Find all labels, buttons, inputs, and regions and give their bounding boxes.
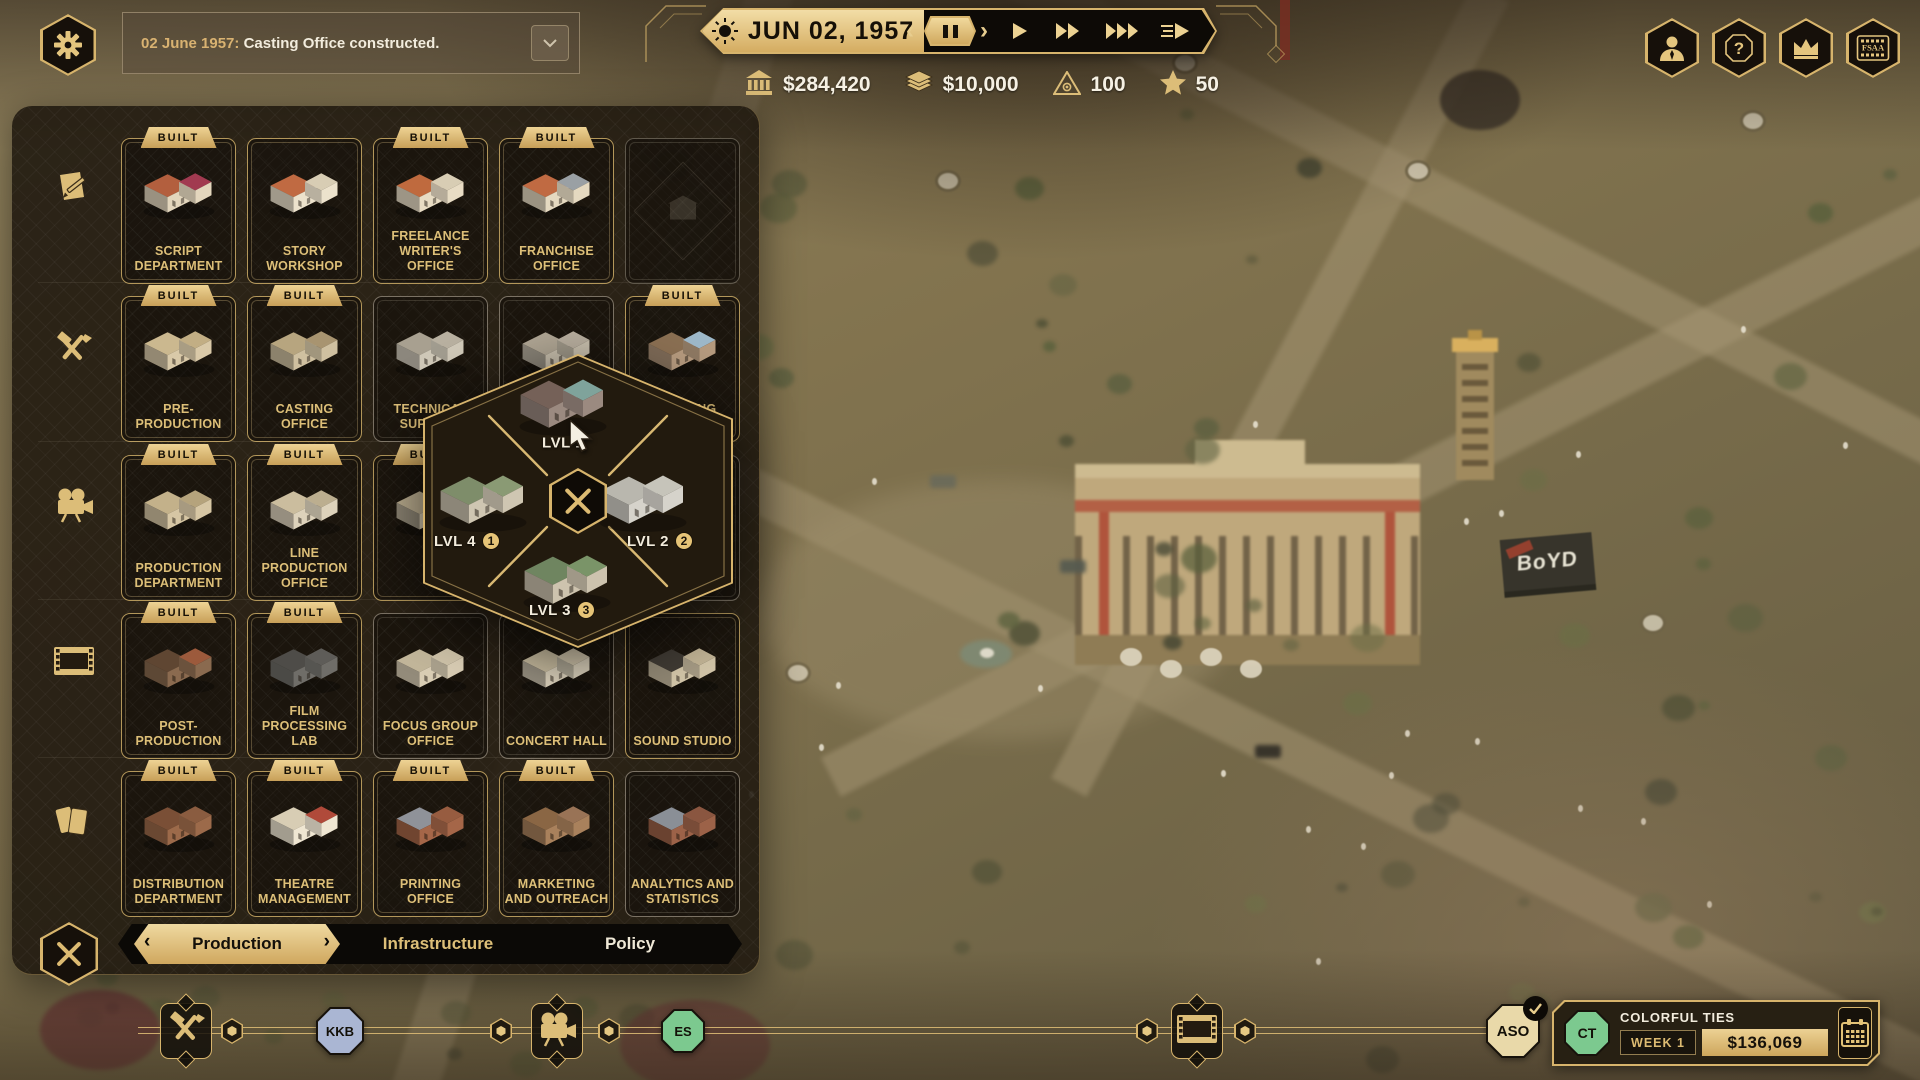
level-label: LVL 2 bbox=[627, 533, 669, 550]
building-card-story-workshop[interactable]: STORY WORKSHOP bbox=[247, 138, 362, 284]
building-card-printing-office[interactable]: PRINTING OFFICEBUILT bbox=[373, 771, 488, 917]
cash-stack-icon bbox=[905, 71, 933, 100]
resource-value: $10,000 bbox=[943, 73, 1019, 97]
phase-film-strip-button[interactable] bbox=[1171, 1003, 1223, 1059]
upgrade-lvl-1-building[interactable] bbox=[504, 360, 622, 445]
building-card-production-department[interactable]: PRODUCTION DEPARTMENTBUILT bbox=[121, 455, 236, 601]
row-divider bbox=[38, 757, 737, 758]
resource-star: 50 bbox=[1160, 70, 1219, 100]
building-label: CASTING OFFICE bbox=[251, 402, 358, 432]
fast-forward-icon bbox=[1056, 23, 1080, 39]
level-label: LVL 4 bbox=[434, 533, 476, 550]
tab-arrow-left: ‹ bbox=[144, 931, 150, 953]
level-count-badge: 2 bbox=[675, 532, 693, 550]
billboard-text: BoYD bbox=[1517, 547, 1578, 576]
building-label: PRODUCTION DEPARTMENT bbox=[125, 561, 232, 591]
built-badge: BUILT bbox=[393, 760, 469, 781]
resource-value: 100 bbox=[1091, 73, 1126, 97]
building-label: DISTRIBUTION DEPARTMENT bbox=[125, 877, 232, 907]
popup-close-button[interactable] bbox=[549, 468, 607, 534]
resource-value: $284,420 bbox=[783, 73, 871, 97]
building-image bbox=[131, 315, 227, 385]
notification-expand-button[interactable] bbox=[531, 25, 569, 61]
building-image bbox=[131, 632, 227, 702]
building-image bbox=[383, 790, 479, 860]
building-image bbox=[131, 790, 227, 860]
resource-bank: $284,420 bbox=[745, 70, 871, 101]
resource-cash-stack: $10,000 bbox=[905, 71, 1019, 100]
resource-value: 50 bbox=[1196, 73, 1219, 97]
sun-icon bbox=[712, 18, 738, 44]
category-movie-camera-icon[interactable] bbox=[52, 487, 98, 533]
category-film-strip-icon[interactable] bbox=[52, 645, 98, 691]
project-name: COLORFUL TIES bbox=[1620, 1010, 1828, 1025]
building-image bbox=[131, 157, 227, 227]
badge-label: ES bbox=[663, 1011, 703, 1051]
building-label: SOUND STUDIO bbox=[629, 734, 736, 749]
upgrade-lvl-4-option[interactable]: LVL 4 1 bbox=[434, 532, 500, 550]
building-card-distribution-department[interactable]: DISTRIBUTION DEPARTMENTBUILT bbox=[121, 771, 236, 917]
building-image bbox=[383, 157, 479, 227]
building-image bbox=[131, 474, 227, 544]
building-label: FRANCHISE OFFICE bbox=[503, 244, 610, 274]
built-badge: BUILT bbox=[267, 444, 343, 465]
building-image bbox=[509, 157, 605, 227]
phase-hammer-brush-button[interactable] bbox=[160, 1003, 212, 1059]
build-menu-tabs: ‹ Production › Infrastructure Policy bbox=[118, 924, 742, 964]
project-amount: $136,069 bbox=[1702, 1029, 1828, 1056]
building-card-marketing-and-outreach[interactable]: MARKETING AND OUTREACHBUILT bbox=[499, 771, 614, 917]
fast-forward-button[interactable] bbox=[1046, 8, 1090, 54]
calendar-icon bbox=[1840, 1018, 1870, 1048]
upgrade-level-popup: LVL 1 LVL 2 2 LVL 3 3 bbox=[423, 354, 733, 648]
built-badge: BUILT bbox=[267, 285, 343, 306]
locked-building-icon bbox=[666, 194, 700, 229]
tab-arrow-right: › bbox=[324, 931, 330, 953]
check-icon bbox=[1523, 996, 1548, 1021]
game-screen: BoYD 02 June 1957: Casting Office constr… bbox=[0, 0, 1920, 1080]
billboard: BoYD bbox=[1500, 532, 1597, 598]
tab-label: Policy bbox=[605, 934, 655, 954]
building-label: SCRIPT DEPARTMENT bbox=[125, 244, 232, 274]
building-label: ANALYTICS AND STATISTICS bbox=[629, 877, 736, 907]
upgrade-lvl-4-building[interactable] bbox=[424, 456, 542, 541]
built-badge: BUILT bbox=[519, 127, 595, 148]
building-card-analytics-and-statistics[interactable]: ANALYTICS AND STATISTICS bbox=[625, 771, 740, 917]
building-card-empty-slot bbox=[625, 138, 740, 284]
level-label: LVL 3 bbox=[529, 602, 571, 619]
star-icon bbox=[1160, 70, 1186, 100]
building-label: CONCERT HALL bbox=[503, 734, 610, 749]
current-project-panel[interactable]: CT COLORFUL TIES WEEK 1 $136,069 bbox=[1552, 1000, 1880, 1066]
skip-icon bbox=[1161, 22, 1189, 40]
row-divider bbox=[38, 282, 737, 283]
milestone-badge-es[interactable]: ES bbox=[661, 1009, 705, 1053]
level-count-badge: 1 bbox=[482, 532, 500, 550]
building-image bbox=[257, 790, 353, 860]
notification-message: Casting Office constructed. bbox=[244, 35, 440, 52]
current-date: JUN 02, 1957 bbox=[748, 17, 914, 46]
tab-label: Infrastructure bbox=[383, 934, 494, 954]
upgrade-lvl-3-option[interactable]: LVL 3 3 bbox=[529, 601, 595, 619]
svg-text:?: ? bbox=[1734, 39, 1744, 58]
svg-text:FSAA: FSAA bbox=[1862, 43, 1885, 53]
category-script-pencil-icon[interactable] bbox=[52, 169, 98, 215]
building-image bbox=[257, 157, 353, 227]
notification-date: 02 June 1957: bbox=[141, 35, 239, 52]
milestone-badge-kkb[interactable]: KKB bbox=[316, 1007, 364, 1055]
building-card-film-processing-lab[interactable]: FILM PROCESSING LABBUILT bbox=[247, 613, 362, 759]
building-image bbox=[635, 790, 731, 860]
building-label: FOCUS GROUP OFFICE bbox=[377, 719, 484, 749]
resource-eye-pyramid: 100 bbox=[1053, 71, 1126, 100]
built-badge: BUILT bbox=[267, 760, 343, 781]
pause-frame-left: ‹ bbox=[906, 8, 914, 54]
building-card-casting-office[interactable]: CASTING OFFICEBUILT bbox=[247, 296, 362, 442]
building-label: PRINTING OFFICE bbox=[377, 877, 484, 907]
milestone-badge-aso[interactable]: ASO bbox=[1486, 1004, 1540, 1058]
building-card-freelance-writer-s-office[interactable]: FREELANCE WRITER'S OFFICEBUILT bbox=[373, 138, 488, 284]
built-badge: BUILT bbox=[393, 127, 469, 148]
resources-bar: $284,420 $10,000 100 50 bbox=[745, 68, 1219, 102]
level-count-badge: 3 bbox=[577, 601, 595, 619]
date-banner: JUN 02, 1957 ‹ › bbox=[700, 8, 1217, 54]
building-image bbox=[509, 790, 605, 860]
play-icon bbox=[1013, 23, 1027, 39]
badge-label: KKB bbox=[318, 1009, 362, 1053]
building-label: STORY WORKSHOP bbox=[251, 244, 358, 274]
hammer-brush-icon bbox=[165, 1008, 207, 1055]
skip-button[interactable] bbox=[1152, 8, 1198, 54]
eye-pyramid-icon bbox=[1053, 71, 1081, 100]
mouse-cursor bbox=[570, 420, 596, 452]
building-label: LINE PRODUCTION OFFICE bbox=[251, 546, 358, 591]
building-label: MARKETING AND OUTREACH bbox=[503, 877, 610, 907]
building-label: POST-PRODUCTION bbox=[125, 719, 232, 749]
building-card-line-production-office[interactable]: LINE PRODUCTION OFFICEBUILT bbox=[247, 455, 362, 601]
building-image bbox=[257, 632, 353, 702]
building-card-script-department[interactable]: SCRIPT DEPARTMENTBUILT bbox=[121, 138, 236, 284]
tab-infrastructure[interactable]: Infrastructure bbox=[358, 924, 518, 964]
project-initials-badge: CT bbox=[1564, 1010, 1610, 1056]
built-badge: BUILT bbox=[141, 285, 217, 306]
pause-button[interactable] bbox=[924, 16, 976, 46]
play-button[interactable] bbox=[1000, 8, 1040, 54]
building-card-post-production[interactable]: POST-PRODUCTIONBUILT bbox=[121, 613, 236, 759]
project-week: WEEK 1 bbox=[1620, 1030, 1696, 1055]
category-hammer-brush-icon[interactable] bbox=[52, 328, 98, 374]
notification-bar[interactable]: 02 June 1957: Casting Office constructed… bbox=[122, 12, 580, 74]
building-image bbox=[257, 315, 353, 385]
built-badge: BUILT bbox=[267, 602, 343, 623]
bank-icon bbox=[745, 70, 773, 101]
building-card-theatre-management[interactable]: THEATRE MANAGEMENTBUILT bbox=[247, 771, 362, 917]
fastest-forward-icon bbox=[1106, 23, 1138, 39]
building-label: FREELANCE WRITER'S OFFICE bbox=[377, 229, 484, 274]
building-card-franchise-office[interactable]: FRANCHISE OFFICEBUILT bbox=[499, 138, 614, 284]
tab-label: Production bbox=[192, 934, 282, 954]
pause-frame-right: › bbox=[980, 8, 988, 54]
chevron-down-icon bbox=[543, 39, 557, 48]
fastest-forward-button[interactable] bbox=[1098, 8, 1146, 54]
calendar-button[interactable] bbox=[1838, 1007, 1872, 1059]
tab-production[interactable]: ‹ Production › bbox=[134, 924, 340, 964]
built-badge: BUILT bbox=[645, 285, 721, 306]
built-badge: BUILT bbox=[141, 602, 217, 623]
building-label: THEATRE MANAGEMENT bbox=[251, 877, 358, 907]
built-badge: BUILT bbox=[141, 444, 217, 465]
film-strip-icon bbox=[1175, 1013, 1219, 1050]
tab-policy[interactable]: Policy bbox=[550, 924, 710, 964]
category-tickets-icon[interactable] bbox=[52, 803, 98, 849]
building-card-pre-production[interactable]: PRE-PRODUCTIONBUILT bbox=[121, 296, 236, 442]
building-image bbox=[257, 474, 353, 544]
built-badge: BUILT bbox=[141, 760, 217, 781]
building-label: PRE-PRODUCTION bbox=[125, 402, 232, 432]
phase-movie-camera-button[interactable] bbox=[531, 1003, 583, 1059]
built-badge: BUILT bbox=[141, 127, 217, 148]
movie-camera-icon bbox=[535, 1011, 579, 1052]
upgrade-lvl-2-option[interactable]: LVL 2 2 bbox=[627, 532, 693, 550]
building-label: FILM PROCESSING LAB bbox=[251, 704, 358, 749]
built-badge: BUILT bbox=[519, 760, 595, 781]
